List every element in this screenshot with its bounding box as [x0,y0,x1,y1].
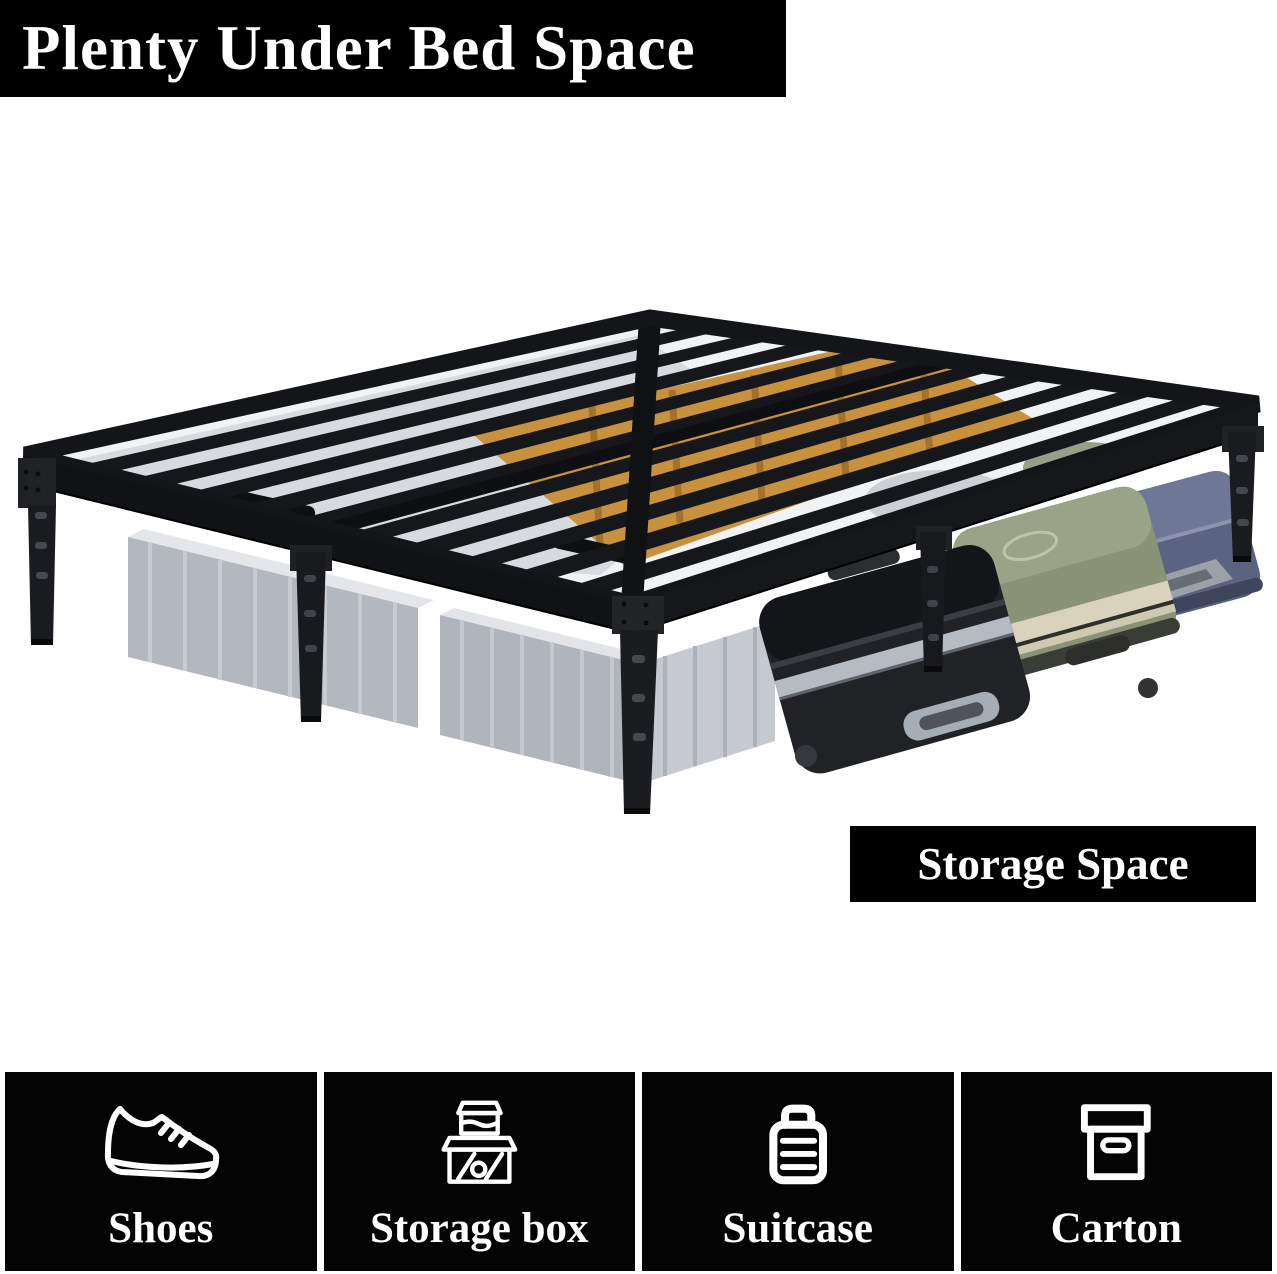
tile-label: Storage box [370,1207,589,1250]
product-image: Plenty Under Bed Space Storage Space Sho… [0,0,1277,1274]
tile-label: Carton [1051,1207,1182,1250]
tile-shoes: Shoes [5,1072,317,1271]
tile-suitcase: Suitcase [642,1072,954,1271]
storage-space-text: Storage Space [917,838,1188,890]
suitcase-icon [750,1097,845,1189]
tile-label: Shoes [108,1207,213,1250]
title-text: Plenty Under Bed Space [22,12,696,85]
carton-icon [1066,1097,1166,1189]
title-banner: Plenty Under Bed Space [0,0,786,97]
storage-space-banner: Storage Space [850,826,1256,902]
feature-tiles: Shoes Storage box Sui [5,1072,1272,1271]
tile-label: Suitcase [723,1207,874,1250]
storage-bin-center [440,608,775,784]
storage-box-icon [432,1097,527,1189]
tile-storage-box: Storage box [324,1072,636,1271]
shoe-icon [95,1097,227,1189]
tile-carton: Carton [961,1072,1273,1271]
